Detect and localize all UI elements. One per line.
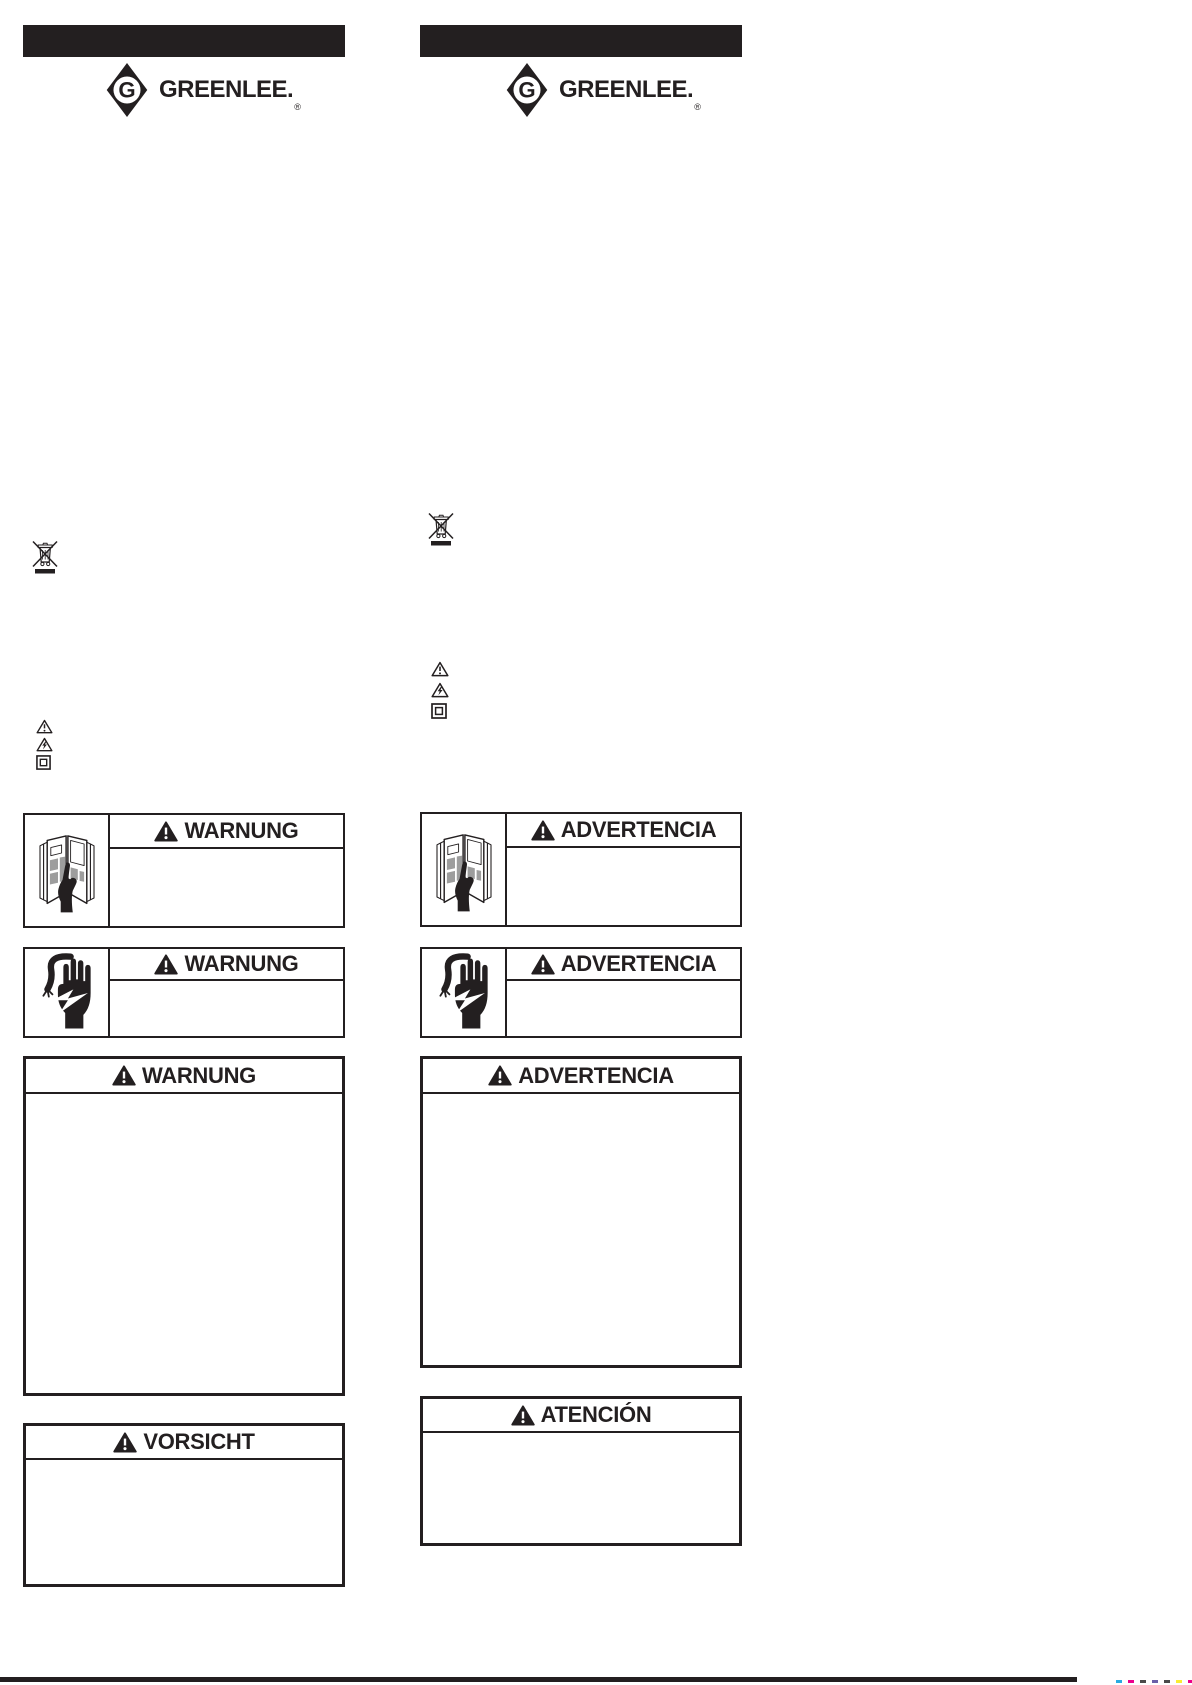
caution-box: ATENCIÓN — [420, 1396, 742, 1546]
warning-title: ADVERTENCIA — [518, 1063, 674, 1089]
electric-hazard-triangle-icon — [36, 737, 53, 752]
warning-header: WARNUNG — [26, 1059, 342, 1094]
warning-triangle-icon — [488, 1065, 512, 1086]
caution-title: VORSICHT — [143, 1429, 254, 1455]
warning-box-main: WARNUNG — [23, 1056, 345, 1396]
shock-icon-cell — [422, 949, 507, 1036]
warning-header: ADVERTENCIA — [507, 814, 740, 848]
greenlee-logo: G GREENLEE. ® — [105, 62, 301, 118]
warning-body — [26, 1094, 342, 1393]
warning-box-shock: ADVERTENCIA — [420, 947, 742, 1038]
registered-mark-icon: ® — [694, 102, 701, 112]
print-registration-marks — [1116, 1680, 1192, 1683]
manual-icon-cell — [25, 815, 110, 926]
warning-triangle-icon — [531, 954, 555, 975]
warning-title: ADVERTENCIA — [561, 951, 717, 977]
manual-icon-cell — [422, 814, 507, 925]
safety-symbol-list — [36, 719, 53, 770]
caution-box: VORSICHT — [23, 1423, 345, 1587]
greenlee-logo: G GREENLEE. ® — [505, 62, 701, 118]
warning-box-main: ADVERTENCIA — [420, 1056, 742, 1368]
warning-triangle-icon — [154, 821, 178, 842]
shock-icon-cell — [25, 949, 110, 1036]
column-spanish: G GREENLEE. ® ADVERTENCIA — [420, 0, 742, 1685]
warning-triangle-icon — [113, 1432, 137, 1453]
electric-shock-hand-icon — [39, 953, 95, 1033]
svg-text:G: G — [518, 78, 535, 103]
warning-header: WARNUNG — [110, 949, 343, 981]
electric-hazard-triangle-icon — [431, 682, 449, 698]
warning-body — [110, 981, 343, 1036]
brand-name: GREENLEE. — [159, 76, 293, 104]
brand-name: GREENLEE. — [559, 76, 693, 104]
warning-triangle-icon — [531, 820, 555, 841]
svg-text:G: G — [118, 78, 135, 103]
warning-body — [110, 849, 343, 926]
warning-box-shock: WARNUNG — [23, 947, 345, 1038]
warning-body — [423, 1094, 739, 1365]
alert-triangle-icon — [431, 661, 449, 677]
header-black-bar — [420, 25, 742, 57]
warning-body — [507, 981, 740, 1036]
warning-header: WARNUNG — [110, 815, 343, 849]
registered-mark-icon: ® — [294, 102, 301, 112]
electric-shock-hand-icon — [436, 953, 492, 1033]
warning-title: WARNUNG — [142, 1063, 256, 1089]
warning-title: ADVERTENCIA — [561, 817, 717, 843]
warning-header: ADVERTENCIA — [423, 1059, 739, 1094]
double-insulation-square-icon — [431, 703, 447, 719]
greenlee-diamond-icon: G — [505, 62, 549, 118]
caution-header: VORSICHT — [26, 1426, 342, 1460]
read-manual-icon — [31, 825, 103, 917]
warning-box-manual: ADVERTENCIA — [420, 812, 742, 927]
weee-crossed-bin-icon — [32, 538, 58, 574]
warning-header: ADVERTENCIA — [507, 949, 740, 981]
caution-body — [423, 1433, 739, 1543]
warning-box-manual: WARNUNG — [23, 813, 345, 928]
double-insulation-square-icon — [36, 755, 51, 770]
warning-title: WARNUNG — [184, 818, 298, 844]
column-german: G GREENLEE. ® WARNUNG — [23, 0, 345, 1685]
warning-title: WARNUNG — [184, 951, 298, 977]
greenlee-diamond-icon: G — [105, 62, 149, 118]
warning-triangle-icon — [511, 1405, 535, 1426]
warning-body — [507, 848, 740, 925]
alert-triangle-icon — [36, 719, 53, 734]
warning-triangle-icon — [112, 1065, 136, 1086]
caution-title: ATENCIÓN — [541, 1402, 652, 1428]
weee-crossed-bin-icon — [428, 510, 454, 546]
read-manual-icon — [428, 824, 500, 916]
footer-rule — [0, 1677, 1077, 1682]
warning-triangle-icon — [154, 954, 178, 975]
safety-symbol-list — [431, 661, 449, 719]
caution-header: ATENCIÓN — [423, 1399, 739, 1433]
header-black-bar — [23, 25, 345, 57]
caution-body — [26, 1460, 342, 1584]
manual-page: G GREENLEE. ® WARNUNG — [0, 0, 1192, 1685]
